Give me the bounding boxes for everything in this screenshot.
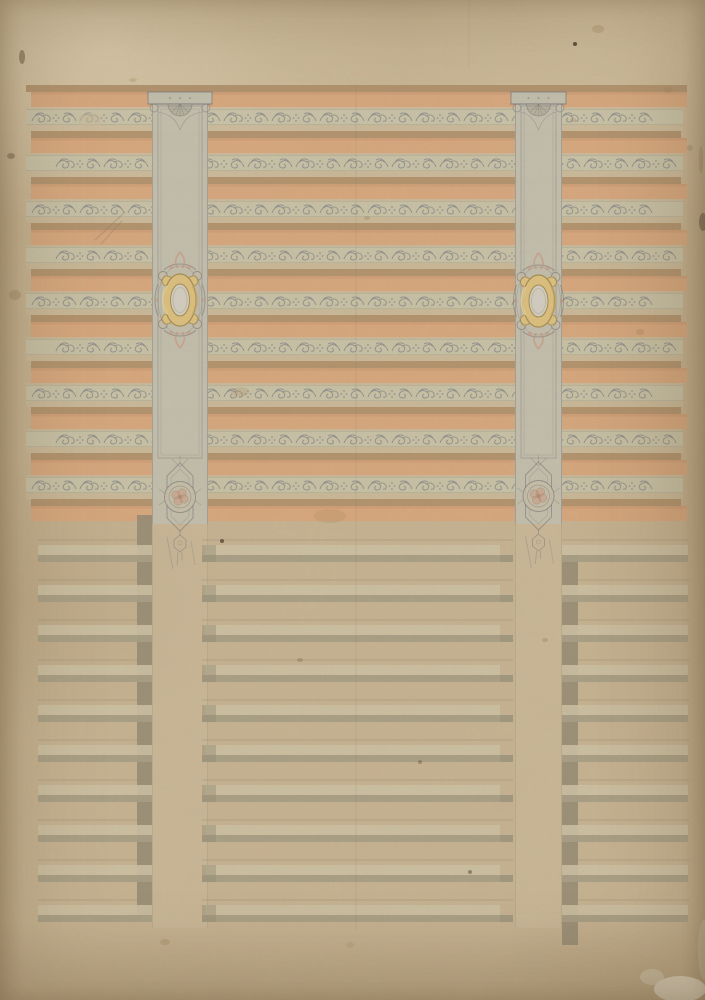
stain-spot (636, 329, 644, 335)
ceiling-design-drawing (0, 0, 705, 1000)
stain-spot (160, 939, 170, 945)
beam-continuation-strip (152, 524, 208, 928)
gold-ring (521, 275, 557, 327)
stain-spot (19, 50, 25, 64)
stain-spot (364, 216, 370, 220)
stain-spot (9, 290, 21, 300)
stain-spot (78, 113, 102, 127)
stain-spot (468, 870, 472, 874)
stain-spot (129, 78, 137, 82)
stain-spot (418, 760, 422, 764)
stain-spot (663, 87, 673, 93)
stain-spot (7, 153, 15, 159)
stain-spot (698, 920, 705, 980)
cross-beam-left (148, 92, 212, 569)
joist-bands (38, 540, 689, 922)
stain-spot (699, 213, 705, 231)
stain-spot (592, 25, 604, 33)
artwork-sheet (0, 0, 705, 1000)
lower-joist-section (38, 515, 689, 945)
stain-spot (687, 145, 693, 151)
stain-spot (346, 942, 354, 948)
stain-spot (297, 658, 303, 662)
stain-spot (699, 146, 703, 174)
stain-spot (220, 539, 224, 543)
stain-spot (314, 509, 346, 523)
stain-spot (231, 387, 249, 397)
stain-spot (570, 118, 576, 122)
gold-ring (162, 274, 198, 326)
cross-beam-right (511, 92, 566, 568)
stain-spot (573, 42, 577, 46)
stain-spot (542, 638, 548, 642)
beam-continuation-strip (515, 524, 562, 928)
stain-spot (640, 969, 664, 985)
